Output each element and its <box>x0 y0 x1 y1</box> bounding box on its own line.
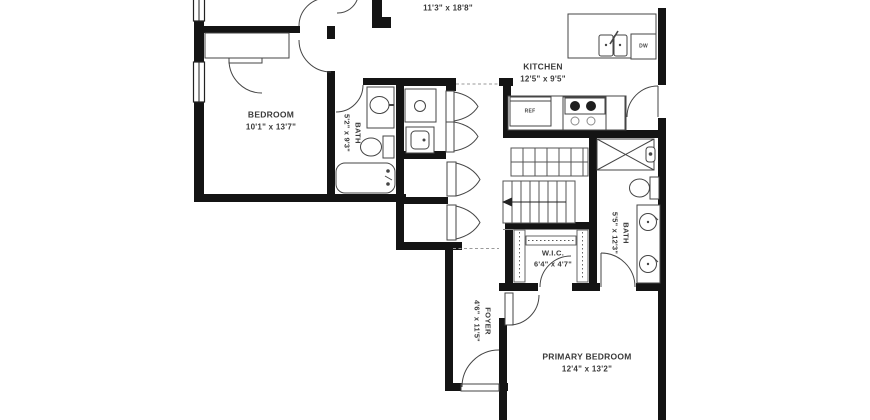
entry-door-arc <box>462 350 499 387</box>
door-arc <box>299 0 327 26</box>
kitchen-dims: 12'5" x 9'5" <box>520 73 566 84</box>
wic-label: W.I.C. 6'4" x 4'7" <box>534 249 572 270</box>
sink <box>370 97 389 114</box>
stairs <box>502 148 589 230</box>
bath2-door-arc <box>601 253 635 287</box>
bath2-name: BATH <box>620 212 631 254</box>
entry-door-leaf <box>461 384 499 391</box>
toilet-bowl <box>630 179 650 197</box>
kitchen-door-arc <box>627 86 658 117</box>
floor-plan-drawing <box>0 0 870 420</box>
foyer-dims: 4'6" x 11'5" <box>472 300 482 342</box>
bath-door-arc <box>336 85 363 112</box>
bath2-dims: 5'5" x 12'3" <box>610 212 620 254</box>
living-room-dims: 11'3" x 18'8" <box>423 2 473 13</box>
kitchen-label: KITCHEN 12'5" x 9'5" <box>520 61 566 84</box>
laundry-bifold-door <box>454 92 478 121</box>
laundry-jamb <box>446 91 454 122</box>
laundry-fixtures <box>405 89 436 153</box>
bedroom-label: BEDROOM 10'1" x 13'7" <box>246 109 296 132</box>
bedroom-name: BEDROOM <box>246 109 296 121</box>
burner <box>571 117 579 125</box>
primary-door-leaf <box>505 293 513 325</box>
toilet-tank <box>383 136 394 158</box>
closet-swing-door <box>456 206 480 239</box>
door-arc <box>337 0 358 13</box>
primary-bedroom-dims: 12'4" x 13'2" <box>542 363 631 374</box>
dryer-door <box>415 101 426 112</box>
laundry-bifold-door <box>454 122 478 151</box>
bedroom-dims: 10'1" x 13'7" <box>246 121 296 132</box>
bathtub <box>336 163 395 193</box>
bath1-dims: 5'2" x 9'3" <box>342 114 352 152</box>
primary-bedroom-label: PRIMARY BEDROOM 12'4" x 13'2" <box>542 351 631 374</box>
toilet-tank <box>650 177 659 199</box>
closet-door-arc <box>229 60 262 93</box>
laundry-jamb <box>446 122 454 152</box>
dishwasher-label: DW <box>639 43 648 50</box>
foyer-name: FOYER <box>482 300 493 342</box>
wic-dims: 6'4" x 4'7" <box>534 259 572 269</box>
bath1-name: BATH <box>352 114 363 152</box>
bath1-label: BATH 5'2" x 9'3" <box>342 114 363 152</box>
primary-bedroom-name: PRIMARY BEDROOM <box>542 351 631 363</box>
burner <box>586 101 596 111</box>
bath2-label: BATH 5'5" x 12'3" <box>610 212 631 254</box>
closet-jamb <box>447 162 456 196</box>
wic-name: W.I.C. <box>534 249 572 260</box>
bedroom-door-arc <box>299 40 331 72</box>
floor-plan: 11'3" x 18'8" KITCHEN 12'5" x 9'5" BEDRO… <box>0 0 870 420</box>
toilet-bowl <box>361 138 382 156</box>
foyer-label: FOYER 4'6" x 11'5" <box>472 300 493 342</box>
burner <box>570 101 580 111</box>
washer-door <box>411 131 429 149</box>
closet-swing-door <box>456 163 480 196</box>
burner <box>587 117 595 125</box>
refrigerator-label: REF <box>525 109 536 116</box>
living-room-label: 11'3" x 18'8" <box>423 2 473 13</box>
closet-jamb <box>447 205 456 240</box>
bedroom-closet <box>205 33 289 58</box>
kitchen-name: KITCHEN <box>520 61 566 73</box>
